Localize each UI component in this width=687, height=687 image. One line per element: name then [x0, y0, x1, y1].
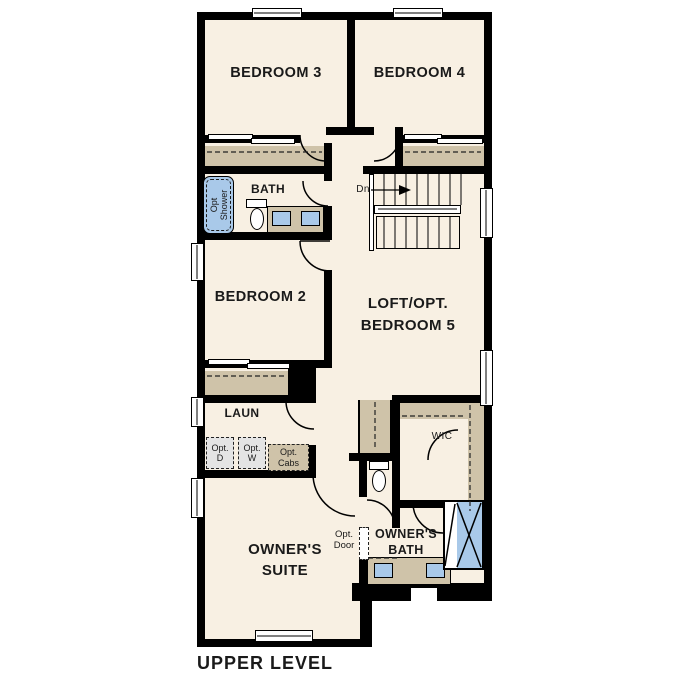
door-swing-water-closet: [367, 500, 395, 528]
door-swing-bedroom4: [374, 135, 400, 161]
plan-title: UPPER LEVEL: [197, 653, 333, 674]
loft-label: LOFT/OPT. BEDROOM 5: [340, 292, 476, 338]
shower-x: [445, 503, 481, 567]
wic-label: WIC: [420, 430, 464, 444]
opt-door-label: Opt. Door: [330, 528, 358, 554]
owners-bath-label: OWNER'S BATH: [366, 525, 446, 559]
plan-linework: [0, 0, 687, 687]
shelf-dashed-lines: [207, 152, 481, 558]
down-label: Dn: [352, 184, 374, 196]
door-swing-bedroom3: [300, 135, 326, 161]
door-swing-bedroom2: [300, 241, 330, 271]
floor-plan: Opt Shower Opt. D Opt. W Opt. Cabs: [0, 0, 687, 687]
bedroom3-label: BEDROOM 3: [205, 60, 347, 86]
door-swing-bath: [303, 181, 328, 206]
bedroom4-label: BEDROOM 4: [355, 60, 484, 86]
down-arrow-head: [399, 185, 411, 195]
stair-treads-lower: [384, 217, 450, 248]
bedroom2-label: BEDROOM 2: [197, 288, 324, 306]
door-swing-laundry: [286, 401, 314, 429]
door-swing-owners-suite: [313, 474, 355, 516]
bath-label: BATH: [238, 182, 298, 198]
laundry-label: LAUN: [212, 406, 272, 422]
